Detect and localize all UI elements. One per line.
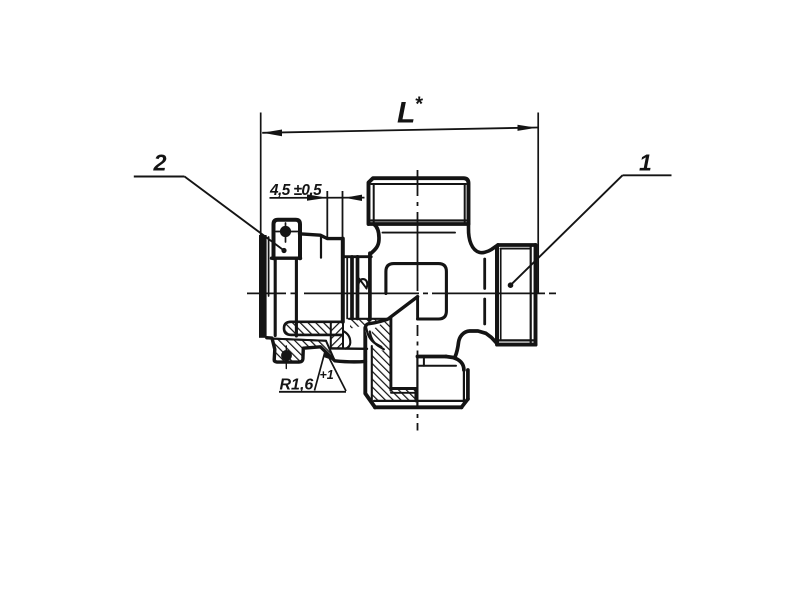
svg-text:1: 1 bbox=[639, 150, 652, 176]
svg-text:*: * bbox=[415, 94, 424, 116]
svg-text:4,5 ±0,5: 4,5 ±0,5 bbox=[269, 182, 322, 199]
svg-text:L: L bbox=[397, 97, 415, 130]
svg-text:+1: +1 bbox=[320, 368, 334, 382]
svg-text:R1,6: R1,6 bbox=[280, 377, 314, 394]
svg-text:2: 2 bbox=[153, 149, 167, 175]
